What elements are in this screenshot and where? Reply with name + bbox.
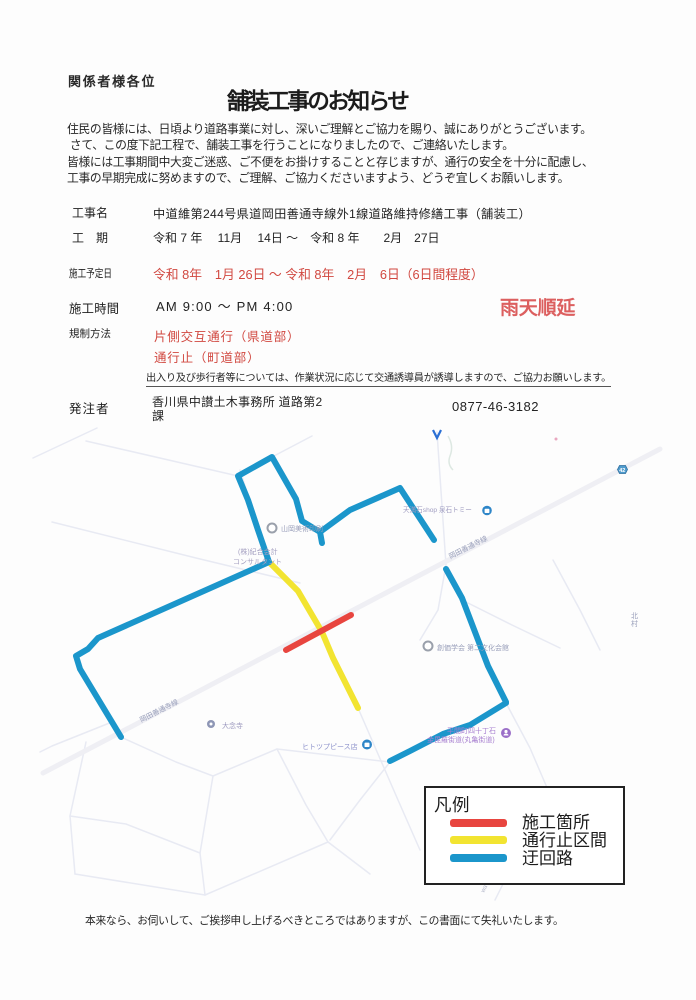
svg-text:村: 村	[631, 619, 638, 628]
svg-text:平間町四十丁石: 平間町四十丁石	[447, 726, 496, 735]
svg-text:北: 北	[631, 612, 638, 620]
svg-text:天満石shop 泉石トミー: 天満石shop 泉石トミー	[403, 505, 472, 514]
svg-text:コンサルタント: コンサルタント	[233, 557, 282, 566]
svg-text:岡田善通寺線: 岡田善通寺線	[138, 697, 180, 724]
svg-text:岡田善通寺線: 岡田善通寺線	[447, 534, 489, 561]
svg-text:創価学会 第二文化会館: 創価学会 第二文化会館	[437, 643, 509, 652]
svg-text:ヒトツプピース店: ヒトツプピース店	[302, 742, 358, 751]
svg-text:金毘羅街道(丸亀街道): 金毘羅街道(丸亀街道)	[427, 735, 495, 744]
svg-text:42: 42	[619, 468, 625, 474]
svg-text:(株)紀合会計: (株)紀合会計	[238, 547, 278, 556]
svg-text:山岡美術印刷: 山岡美術印刷	[281, 524, 323, 533]
svg-text:大念寺: 大念寺	[222, 721, 243, 730]
